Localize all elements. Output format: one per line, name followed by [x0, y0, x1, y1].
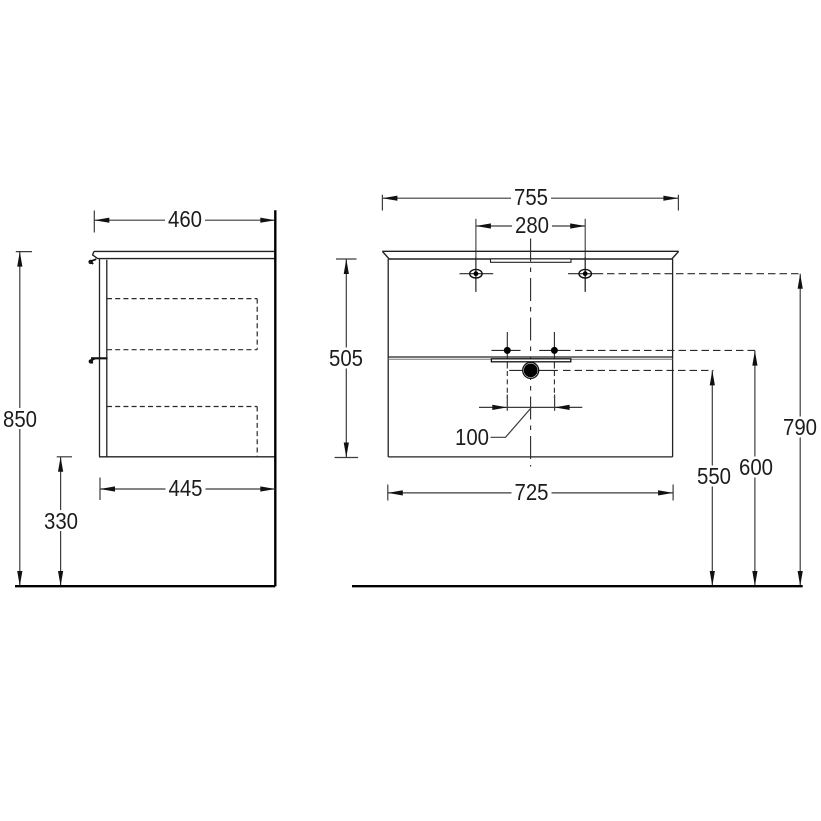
svg-text:725: 725 [515, 479, 549, 505]
svg-text:280: 280 [515, 212, 549, 238]
svg-text:505: 505 [329, 345, 363, 371]
svg-text:100: 100 [455, 424, 489, 450]
svg-text:600: 600 [739, 454, 773, 480]
svg-text:460: 460 [168, 206, 202, 232]
svg-text:790: 790 [783, 414, 817, 440]
svg-text:550: 550 [697, 463, 731, 489]
svg-text:330: 330 [44, 508, 78, 534]
svg-text:445: 445 [169, 475, 203, 501]
svg-text:850: 850 [3, 406, 37, 432]
svg-text:755: 755 [514, 184, 548, 210]
